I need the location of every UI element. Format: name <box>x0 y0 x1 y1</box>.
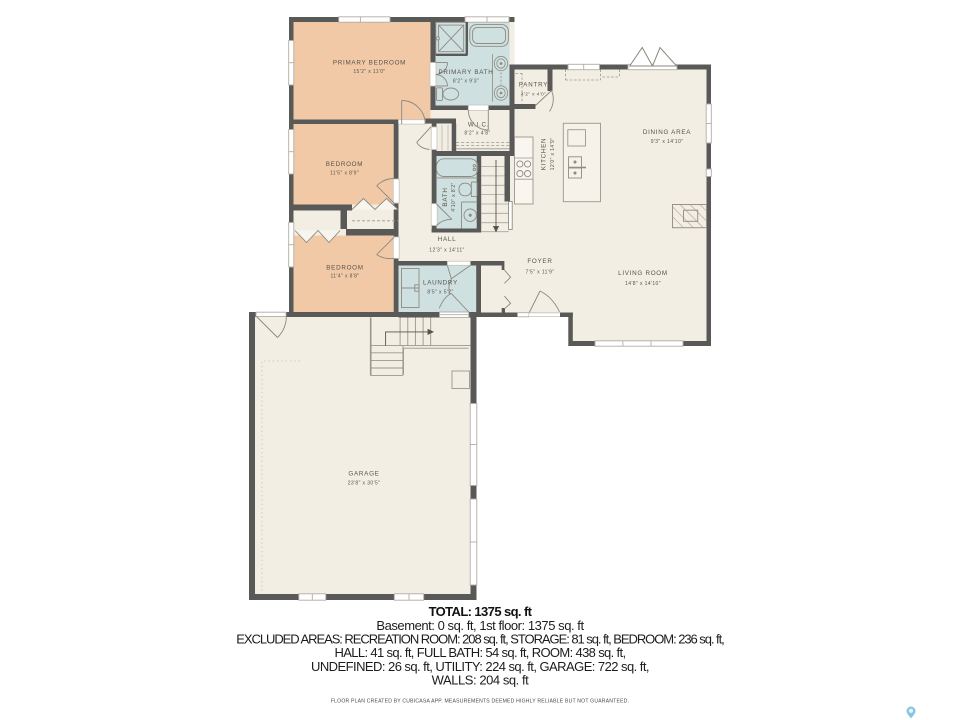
svg-text:FOYER: FOYER <box>527 258 552 265</box>
svg-text:BATH: BATH <box>442 187 449 206</box>
svg-text:14'8" x 14'10": 14'8" x 14'10" <box>625 281 661 287</box>
svg-text:7'5" x 11'9": 7'5" x 11'9" <box>525 270 554 276</box>
svg-text:PRIMARY BATH: PRIMARY BATH <box>439 69 494 76</box>
svg-text:BEDROOM: BEDROOM <box>326 265 363 272</box>
svg-text:GARAGE: GARAGE <box>348 471 379 478</box>
svg-text:11'4" x 8'8": 11'4" x 8'8" <box>330 274 359 280</box>
svg-text:TOTAL: 1375 sq. ft: TOTAL: 1375 sq. ft <box>429 604 533 619</box>
svg-text:W.I.C.: W.I.C. <box>468 122 489 129</box>
svg-text:HALL: HALL <box>438 236 457 243</box>
svg-text:9'3" x 14'10": 9'3" x 14'10" <box>651 139 684 145</box>
svg-text:11'5" x 8'9": 11'5" x 8'9" <box>330 171 359 177</box>
svg-text:23'8" x 30'5": 23'8" x 30'5" <box>348 481 381 487</box>
svg-text:BEDROOM: BEDROOM <box>326 161 363 168</box>
svg-text:WALLS: 204 sq. ft: WALLS: 204 sq. ft <box>432 672 529 687</box>
svg-text:DINING AREA: DINING AREA <box>643 129 691 136</box>
svg-text:12'0" x 14'9": 12'0" x 14'9" <box>550 138 556 171</box>
svg-text:4'10" x 8'2": 4'10" x 8'2" <box>451 182 457 211</box>
svg-text:8'2" x 4'8": 8'2" x 4'8" <box>464 131 490 137</box>
svg-text:4'2" x 4'0": 4'2" x 4'0" <box>521 92 546 98</box>
svg-text:15'2" x 11'0": 15'2" x 11'0" <box>353 69 385 75</box>
svg-text:LIVING ROOM: LIVING ROOM <box>618 270 668 277</box>
svg-text:PANTRY: PANTRY <box>519 82 548 89</box>
svg-text:FLOOR PLAN CREATED BY CUBICASA: FLOOR PLAN CREATED BY CUBICASA APP. MEAS… <box>331 699 629 705</box>
svg-text:8'2" x 9'3": 8'2" x 9'3" <box>453 79 479 85</box>
svg-text:LAUNDRY: LAUNDRY <box>423 280 458 287</box>
svg-text:8'5" x 5'2": 8'5" x 5'2" <box>427 290 453 296</box>
svg-text:Basement: 0 sq. ft, 1st floor:: Basement: 0 sq. ft, 1st floor: 1375 sq. … <box>376 618 584 633</box>
svg-text:KITCHEN: KITCHEN <box>541 138 548 171</box>
svg-text:PRIMARY BEDROOM: PRIMARY BEDROOM <box>333 60 406 67</box>
svg-text:12'3" x 14'11": 12'3" x 14'11" <box>429 248 464 254</box>
